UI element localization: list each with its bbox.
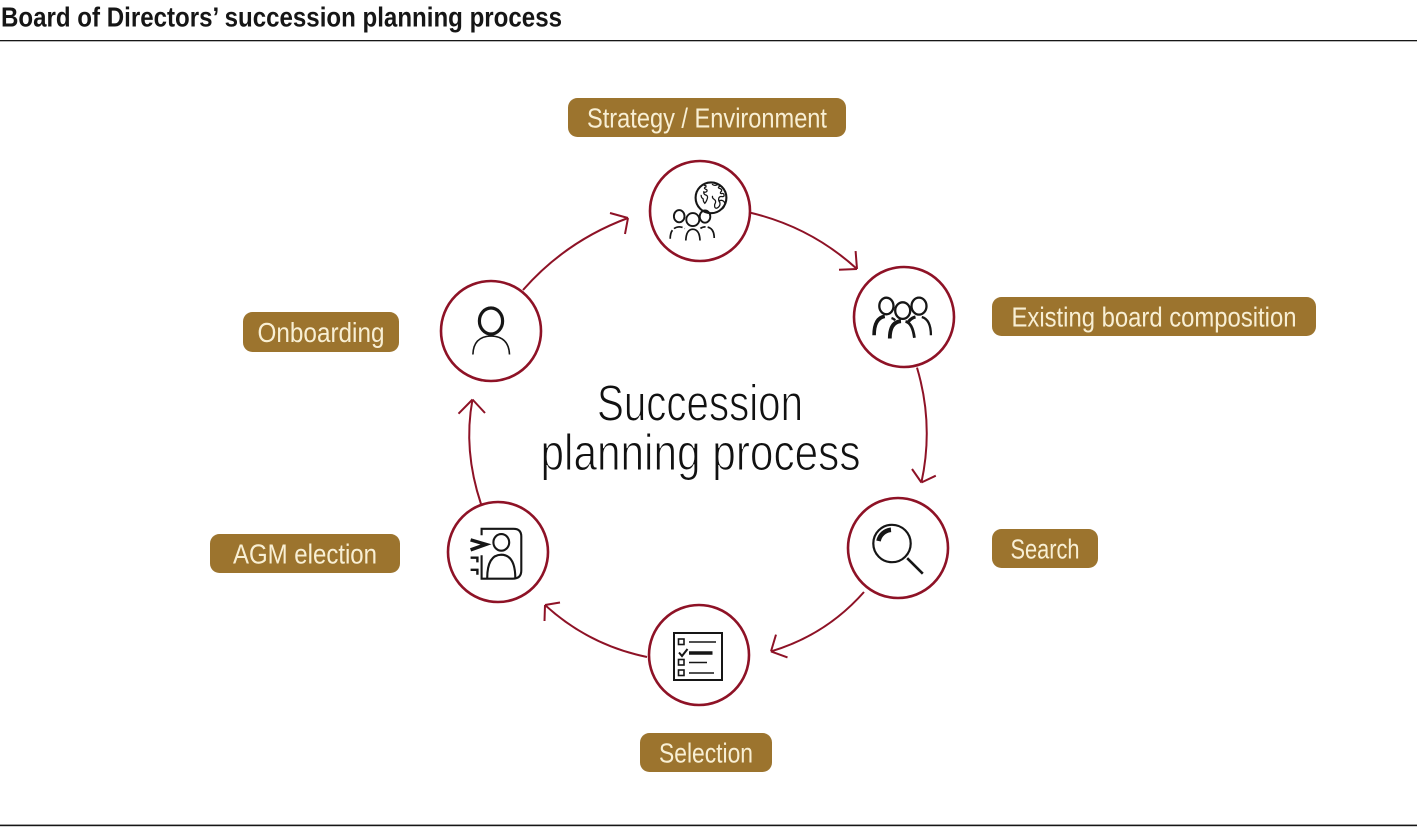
svg-text:Board of Directors’ succession: Board of Directors’ succession planning … xyxy=(1,2,562,33)
svg-text:AGM election: AGM election xyxy=(233,539,377,570)
svg-text:Onboarding: Onboarding xyxy=(258,317,385,348)
svg-text:Succession: Succession xyxy=(597,375,803,432)
svg-text:Selection: Selection xyxy=(659,738,753,769)
svg-text:planning process: planning process xyxy=(541,424,861,481)
svg-text:Existing board composition: Existing board composition xyxy=(1012,302,1297,333)
svg-text:Search: Search xyxy=(1011,534,1080,565)
svg-text:Strategy / Environment: Strategy / Environment xyxy=(587,103,827,134)
